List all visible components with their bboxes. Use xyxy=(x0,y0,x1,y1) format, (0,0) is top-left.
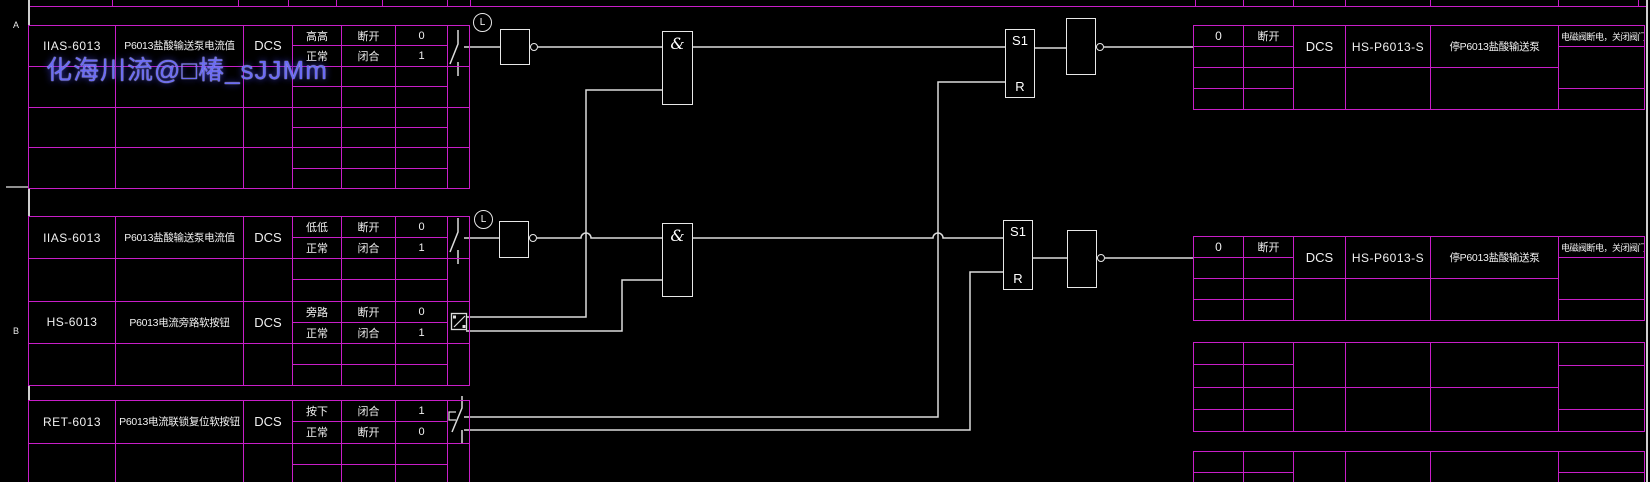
cell-output-state: 断开 xyxy=(1244,237,1293,258)
set-input-label: S1 xyxy=(1012,34,1028,47)
table-row: HS-6013 P6013电流旁路软按钮 DCS 旁路 正常 断开 闭合 0 1 xyxy=(29,302,469,344)
output-table-block-4 xyxy=(1193,451,1645,482)
cell-description: P6013盐酸输送泵电流值 xyxy=(116,217,244,258)
cell-logic-value: 1 xyxy=(396,46,447,65)
table-row: RET-6013 P6013电流联锁复位软按钮 DCS 按下 正常 闭合 断开 … xyxy=(29,401,469,444)
wire-not-to-and-lower xyxy=(537,233,662,238)
cell-system: DCS xyxy=(244,401,293,443)
cell-contact-state: 闭合 xyxy=(342,238,395,258)
cell-tag: HS-P6013-S xyxy=(1346,237,1430,279)
cell-contact-state: 闭合 xyxy=(342,46,395,65)
top-grid-stub xyxy=(1293,0,1294,6)
and-gate: & xyxy=(662,31,693,105)
cell-action: 停P6013盐酸输送泵 xyxy=(1431,26,1558,68)
frame-border-segment xyxy=(28,386,30,400)
cell-symbol xyxy=(448,26,469,66)
inverter-bubble-icon xyxy=(1096,43,1104,51)
cell-output-value: 0 xyxy=(1194,26,1243,47)
sr-flipflop: S1 R xyxy=(1005,29,1035,98)
top-grid-stub xyxy=(1430,0,1431,6)
row-marker-b: B xyxy=(13,326,19,336)
cell-condition: 正常 xyxy=(293,323,341,343)
frame-border-segment xyxy=(28,0,30,25)
cell-condition: 正常 xyxy=(293,422,341,442)
frame-border-segment xyxy=(28,189,30,216)
top-grid-stub xyxy=(1195,0,1196,6)
cell-logic-value: 0 xyxy=(396,302,447,323)
output-table-block-2: 0 断开 DCS HS-P6013-S 停P6013盐酸输送泵 电磁阀断电，关闭… xyxy=(1193,236,1645,321)
not-gate xyxy=(1066,18,1096,75)
top-table-edge xyxy=(28,6,1647,7)
cell-logic-value: 1 xyxy=(396,238,447,258)
cell-action: 停P6013盐酸输送泵 xyxy=(1431,237,1558,279)
cell-symbol xyxy=(448,302,469,343)
wire-reset-to-r-lower xyxy=(464,272,1003,430)
table-row-empty xyxy=(29,344,469,385)
top-grid-stub xyxy=(447,0,448,6)
cad-logic-drawing: A B IIAS-6013 P6013盐酸输送泵电流值 DCS 高高 正常 断开… xyxy=(0,0,1650,482)
input-table-block-2: IIAS-6013 P6013盐酸输送泵电流值 DCS 低低 正常 断开 闭合 … xyxy=(28,216,470,386)
frame-tick xyxy=(6,186,28,188)
cell-contact-state: 断开 xyxy=(342,26,395,46)
table-row-empty xyxy=(29,259,469,301)
cell-condition: 高高 xyxy=(293,26,341,46)
cell-note: 电磁阀断电，关闭阀门 xyxy=(1559,237,1644,258)
top-grid-stub xyxy=(1345,0,1346,6)
output-table-block-3 xyxy=(1193,342,1645,432)
cell-symbol xyxy=(448,401,469,443)
top-grid-stub xyxy=(470,0,471,6)
wire-bypass-to-and-upper xyxy=(466,90,662,317)
top-grid-stub xyxy=(112,0,113,6)
table-row-empty xyxy=(29,444,469,482)
wire-reset-to-r-upper xyxy=(464,82,1005,417)
table-row: IIAS-6013 P6013盐酸输送泵电流值 DCS 低低 正常 断开 闭合 … xyxy=(29,217,469,259)
inverter-bubble-icon xyxy=(1097,254,1105,262)
cell-contact-state: 断开 xyxy=(342,217,395,238)
cell-tag: HS-P6013-S xyxy=(1346,26,1430,68)
cell-system: DCS xyxy=(1294,237,1345,279)
cell-contact-state: 闭合 xyxy=(342,323,395,343)
table-row-empty xyxy=(29,148,469,188)
cell-system: DCS xyxy=(1294,26,1345,68)
inverter-bubble-icon xyxy=(529,234,537,242)
set-input-label: S1 xyxy=(1010,225,1026,238)
indicator-lamp-icon: L xyxy=(473,13,492,32)
and-gate-label: & xyxy=(663,226,692,245)
frame-border-right xyxy=(1646,0,1648,482)
cell-symbol xyxy=(448,217,469,258)
sr-flipflop: S1 R xyxy=(1003,220,1033,290)
top-grid-stub xyxy=(336,0,337,6)
row-marker-a: A xyxy=(13,20,19,30)
top-grid-stub xyxy=(1638,0,1639,6)
cell-logic-value: 1 xyxy=(396,401,447,422)
lamp-label: L xyxy=(480,17,486,28)
not-gate xyxy=(1067,230,1097,288)
top-grid-stub xyxy=(238,0,239,6)
cell-condition: 低低 xyxy=(293,217,341,238)
table-row-empty xyxy=(29,108,469,149)
cell-condition: 按下 xyxy=(293,401,341,422)
cell-condition: 正常 xyxy=(293,238,341,258)
top-grid-stub xyxy=(1243,0,1244,6)
top-grid-stub xyxy=(382,0,383,6)
and-gate: & xyxy=(662,223,693,297)
cell-contact-state: 闭合 xyxy=(342,401,395,422)
wire-bypass-to-and-lower xyxy=(466,280,662,331)
indicator-lamp-icon: L xyxy=(474,210,493,229)
lamp-label: L xyxy=(481,214,487,225)
not-gate xyxy=(499,221,529,258)
input-table-block-3: RET-6013 P6013电流联锁复位软按钮 DCS 按下 正常 闭合 断开 … xyxy=(28,400,470,482)
cell-tag: IIAS-6013 xyxy=(29,217,116,258)
wire-and-to-sr-lower xyxy=(693,233,1003,238)
inverter-bubble-icon xyxy=(530,43,538,51)
watermark-text: 化海川流@□椿_sJJMm xyxy=(46,50,328,87)
top-grid-stub xyxy=(1558,0,1559,6)
cell-condition: 旁路 xyxy=(293,302,341,323)
cell-logic-value: 1 xyxy=(396,323,447,343)
cell-logic-value: 0 xyxy=(396,217,447,238)
cell-logic-value: 0 xyxy=(396,422,447,442)
cell-note: 电磁阀断电，关闭阀门 xyxy=(1559,26,1644,47)
cell-output-state: 断开 xyxy=(1244,26,1293,47)
and-gate-label: & xyxy=(663,34,692,53)
cell-description: P6013电流联锁复位软按钮 xyxy=(116,401,244,443)
cell-description: P6013电流旁路软按钮 xyxy=(116,302,244,343)
cell-tag: HS-6013 xyxy=(29,302,116,343)
reset-input-label: R xyxy=(1015,80,1024,93)
reset-input-label: R xyxy=(1013,272,1022,285)
cell-system: DCS xyxy=(244,217,293,258)
cell-logic-value: 0 xyxy=(396,26,447,46)
cell-system: DCS xyxy=(244,302,293,343)
cell-output-value: 0 xyxy=(1194,237,1243,258)
cell-contact-state: 断开 xyxy=(342,422,395,442)
cell-contact-state: 断开 xyxy=(342,302,395,323)
top-grid-stub xyxy=(288,0,289,6)
not-gate xyxy=(500,29,530,65)
cell-tag: RET-6013 xyxy=(29,401,116,443)
output-table-block-1: 0 断开 DCS HS-P6013-S 停P6013盐酸输送泵 电磁阀断电，关闭… xyxy=(1193,25,1645,110)
